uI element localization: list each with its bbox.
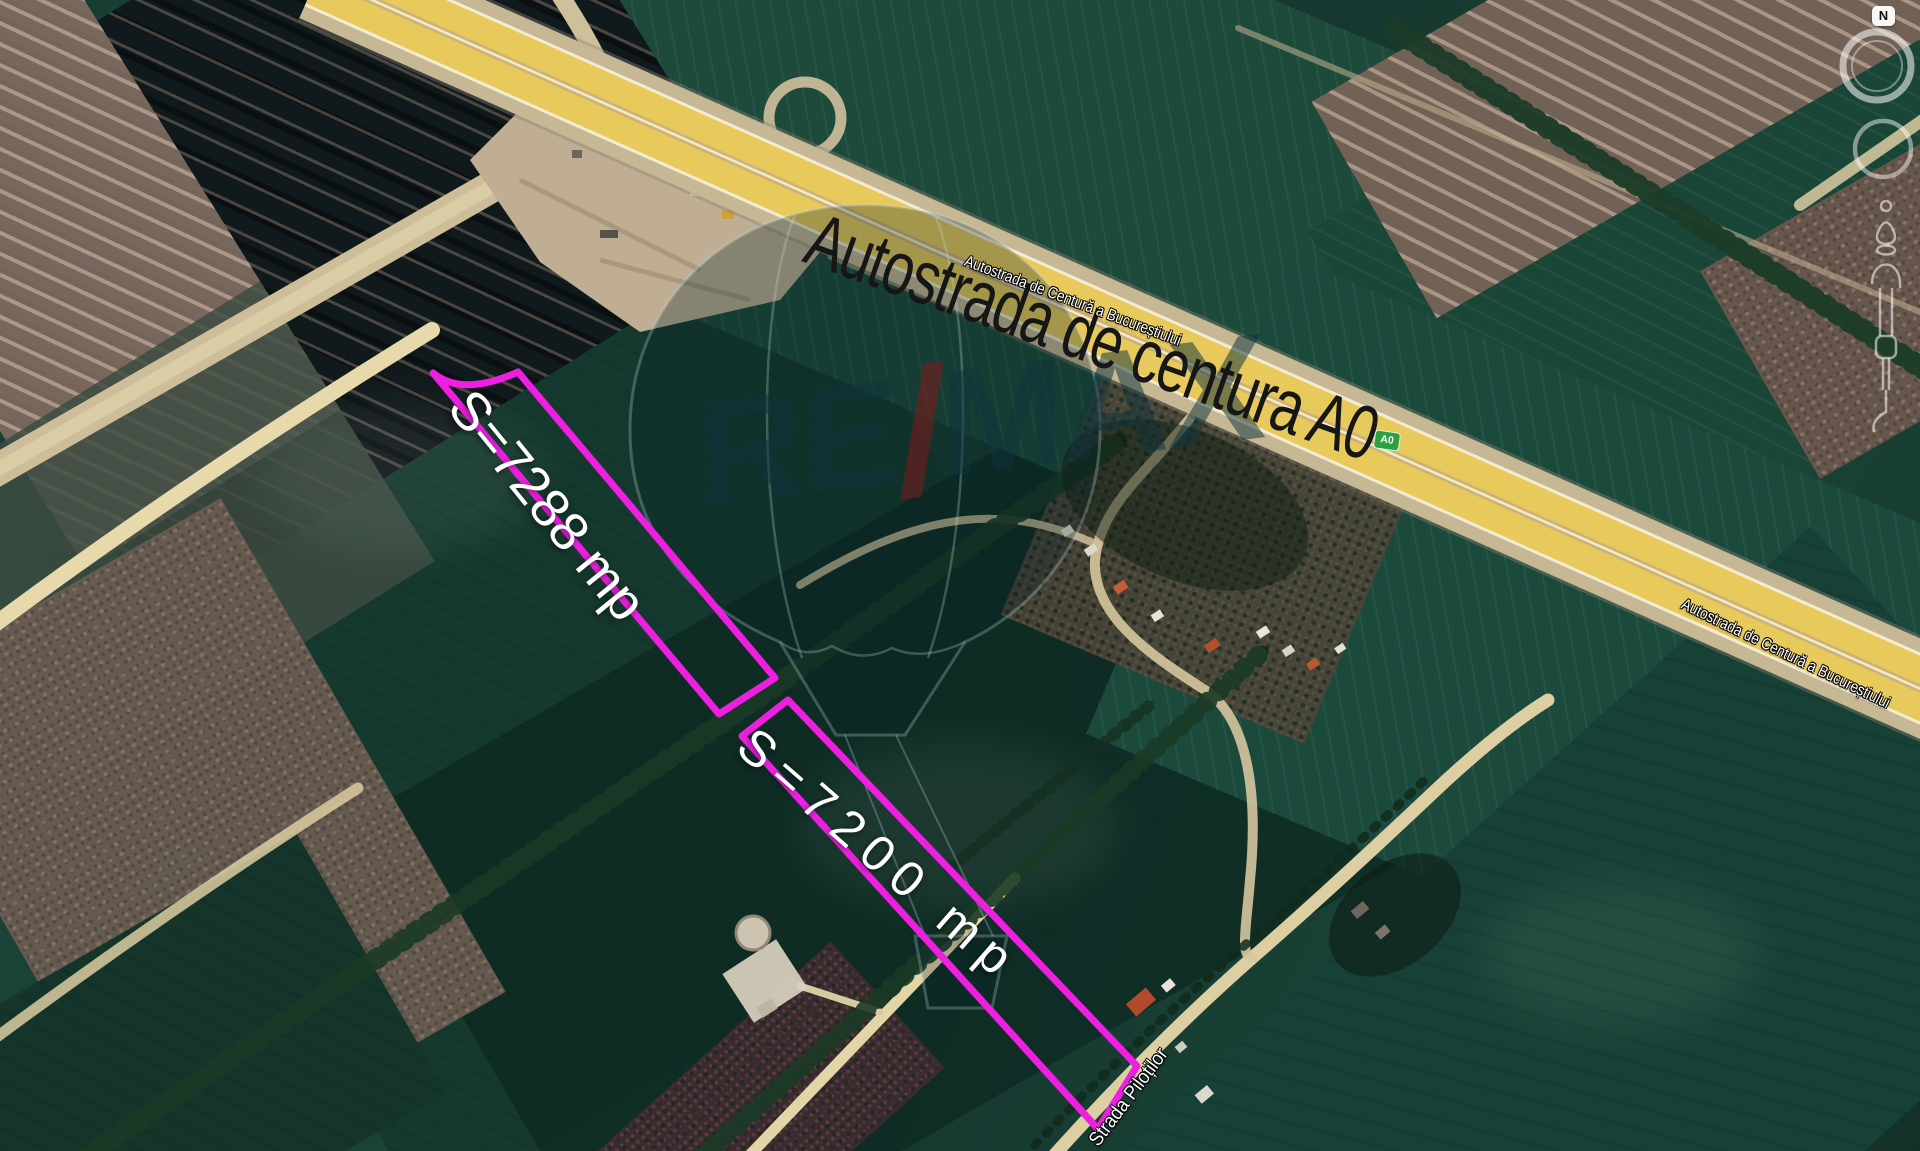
- zoom-slider-handle[interactable]: [1876, 336, 1896, 358]
- pegman-icon[interactable]: [1877, 201, 1895, 255]
- nav-controls-layer: [0, 0, 1920, 1151]
- compass-ring-inner: [1852, 41, 1902, 91]
- zoom-slider[interactable]: [1872, 265, 1900, 433]
- pan-wheel[interactable]: [1855, 121, 1911, 177]
- satellite-map: RE/MAX S=7288 mp S=7200 mp Autostrada de…: [0, 0, 1920, 1151]
- compass-ring[interactable]: [1843, 32, 1911, 100]
